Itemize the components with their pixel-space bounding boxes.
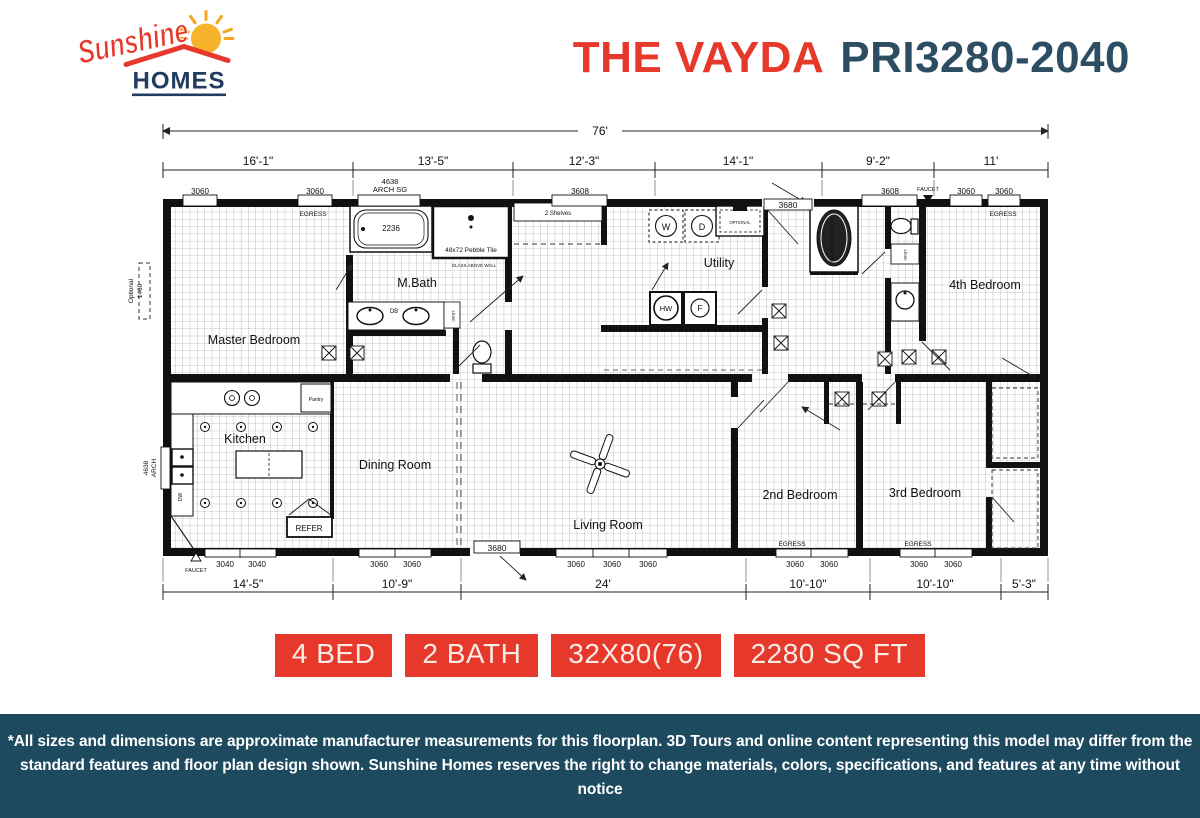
window-label: 3060 xyxy=(306,187,324,196)
window-label: 3060 xyxy=(995,187,1013,196)
disclaimer-line-2: standard features and floor plan design … xyxy=(0,754,1200,802)
room-kitchen: Kitchen xyxy=(224,432,266,446)
optional-left-label: Optional xyxy=(128,278,135,303)
bottom-dim: 24' xyxy=(595,577,611,591)
linen2-label: Linen xyxy=(903,249,908,261)
faucet-label-bottom: FAUCET xyxy=(185,568,207,574)
top-dim: 11' xyxy=(984,154,999,168)
room-master: Master Bedroom xyxy=(208,333,300,347)
glass-above-wall-label: GLASS ABOVE WALL xyxy=(452,263,497,268)
dryer-label: D xyxy=(699,222,706,232)
window-label: 3060 xyxy=(191,187,209,196)
water-heater-label: HW xyxy=(660,304,673,313)
top-dim: 14'-1" xyxy=(723,154,754,168)
bottom-dim: 10'-10" xyxy=(916,577,953,591)
badge-baths: 2 BATH xyxy=(405,634,538,677)
linen-label: Linen xyxy=(451,310,456,322)
window-label: 3060 xyxy=(786,560,804,569)
window-label: 3040 xyxy=(216,560,234,569)
logo-underline xyxy=(132,94,226,97)
room-mbath: M.Bath xyxy=(397,276,437,290)
top-dim: 13'-5" xyxy=(418,154,449,168)
egress-label: EGRESS xyxy=(989,211,1017,218)
arch-left-label: ARCH xyxy=(151,458,158,477)
window-label: 3060 xyxy=(370,560,388,569)
door-3680-label-top: 3680 xyxy=(779,200,798,210)
room-utility: Utility xyxy=(704,256,735,270)
disclaimer-line-1: *All sizes and dimensions are approximat… xyxy=(8,730,1192,754)
room-living: Living Room xyxy=(573,518,642,532)
badge-beds: 4 BED xyxy=(275,634,392,677)
pantry-label: Pantry xyxy=(309,397,324,403)
bottom-dim: 5'-3" xyxy=(1012,577,1036,591)
window-label: 3060 xyxy=(603,560,621,569)
window-label: 3060 xyxy=(567,560,585,569)
double-bowl-label: DB xyxy=(390,309,398,315)
badge-sqft: 2280 SQ FT xyxy=(734,634,926,677)
egress-label: EGRESS xyxy=(778,541,806,548)
bottom-dim: 10'-10" xyxy=(789,577,826,591)
bottom-dim: 10'-9" xyxy=(382,577,413,591)
disclaimer-band: *All sizes and dimensions are approximat… xyxy=(0,714,1200,818)
top-dim: 9'-2" xyxy=(866,154,890,168)
badge-size: 32X80(76) xyxy=(551,634,720,677)
bottom-dim: 14'-5" xyxy=(233,577,264,591)
arch-window-label: ARCH SG xyxy=(373,185,407,194)
toilet xyxy=(473,341,491,373)
optional-label: OPTIONAL xyxy=(729,220,751,225)
sunshine-homes-logo: Sunshine HOMES xyxy=(56,6,326,112)
overall-width: 76' xyxy=(592,124,608,138)
furnace-label: F xyxy=(697,303,702,313)
dishwasher-label: DW xyxy=(178,493,184,502)
model-number: PRI3280-2040 xyxy=(840,36,1130,80)
refrigerator-label: REFER xyxy=(295,524,322,533)
flyer-page: Sunshine HOMES THE VAYDA PRI3280-2040 xyxy=(0,0,1200,818)
room-bed2: 2nd Bedroom xyxy=(762,488,837,502)
shelves-label: 2 Shelves xyxy=(545,211,571,217)
window-label: 3060 xyxy=(820,560,838,569)
vera-tub-label: 60x43 VERA TUB xyxy=(830,218,836,262)
top-dim: 12'-3" xyxy=(569,154,600,168)
window-label: 3608 xyxy=(881,187,899,196)
window-label: 3608 xyxy=(571,187,589,196)
logo-word-text: HOMES xyxy=(132,68,225,95)
faucet-label-top: FAUCET xyxy=(917,187,939,193)
page-title: THE VAYDA PRI3280-2040 xyxy=(573,36,1130,80)
shower-label: 48x72 Pebble Tile xyxy=(445,247,497,254)
window-label: 3060 xyxy=(957,187,975,196)
window-label: 3060 xyxy=(639,560,657,569)
tub-size-label: 2236 xyxy=(382,224,400,233)
toilet-2 xyxy=(891,219,918,235)
arch-left-label: 4638 xyxy=(143,460,150,475)
window-label: 3060 xyxy=(910,560,928,569)
optional-left-label: 1460 xyxy=(137,283,144,298)
window-label: 3060 xyxy=(403,560,421,569)
model-name: THE VAYDA xyxy=(573,36,824,80)
window-label: 3040 xyxy=(248,560,266,569)
window-label: 3060 xyxy=(944,560,962,569)
room-bed3: 3rd Bedroom xyxy=(889,486,961,500)
top-dim: 16'-1" xyxy=(243,154,274,168)
floorplan-drawing: Master Bedroom M.Bath Utility 4th Bedroo… xyxy=(0,118,1200,618)
room-bed4: 4th Bedroom xyxy=(949,278,1021,292)
egress-label: EGRESS xyxy=(904,541,932,548)
room-dining: Dining Room xyxy=(359,458,431,472)
washer-label: W xyxy=(662,222,671,232)
door-3680-label-bottom: 3680 xyxy=(488,543,507,553)
spec-badges: 4 BED 2 BATH 32X80(76) 2280 SQ FT xyxy=(0,634,1200,677)
egress-label: EGRESS xyxy=(299,211,327,218)
